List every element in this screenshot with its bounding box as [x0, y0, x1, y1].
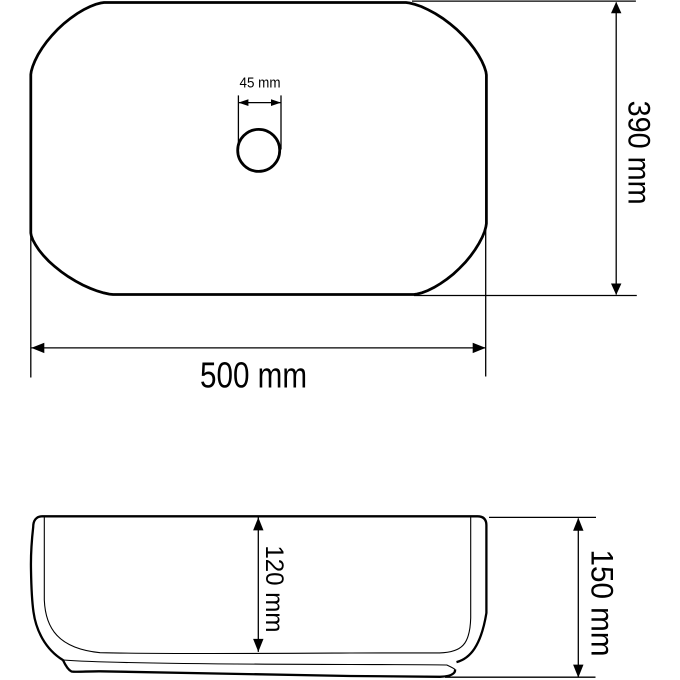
svg-text:500 mm: 500 mm: [200, 355, 307, 396]
svg-text:390 mm: 390 mm: [622, 101, 658, 205]
svg-text:120 mm: 120 mm: [260, 545, 288, 632]
svg-text:45 mm: 45 mm: [240, 75, 281, 91]
svg-text:150 mm: 150 mm: [584, 550, 620, 657]
